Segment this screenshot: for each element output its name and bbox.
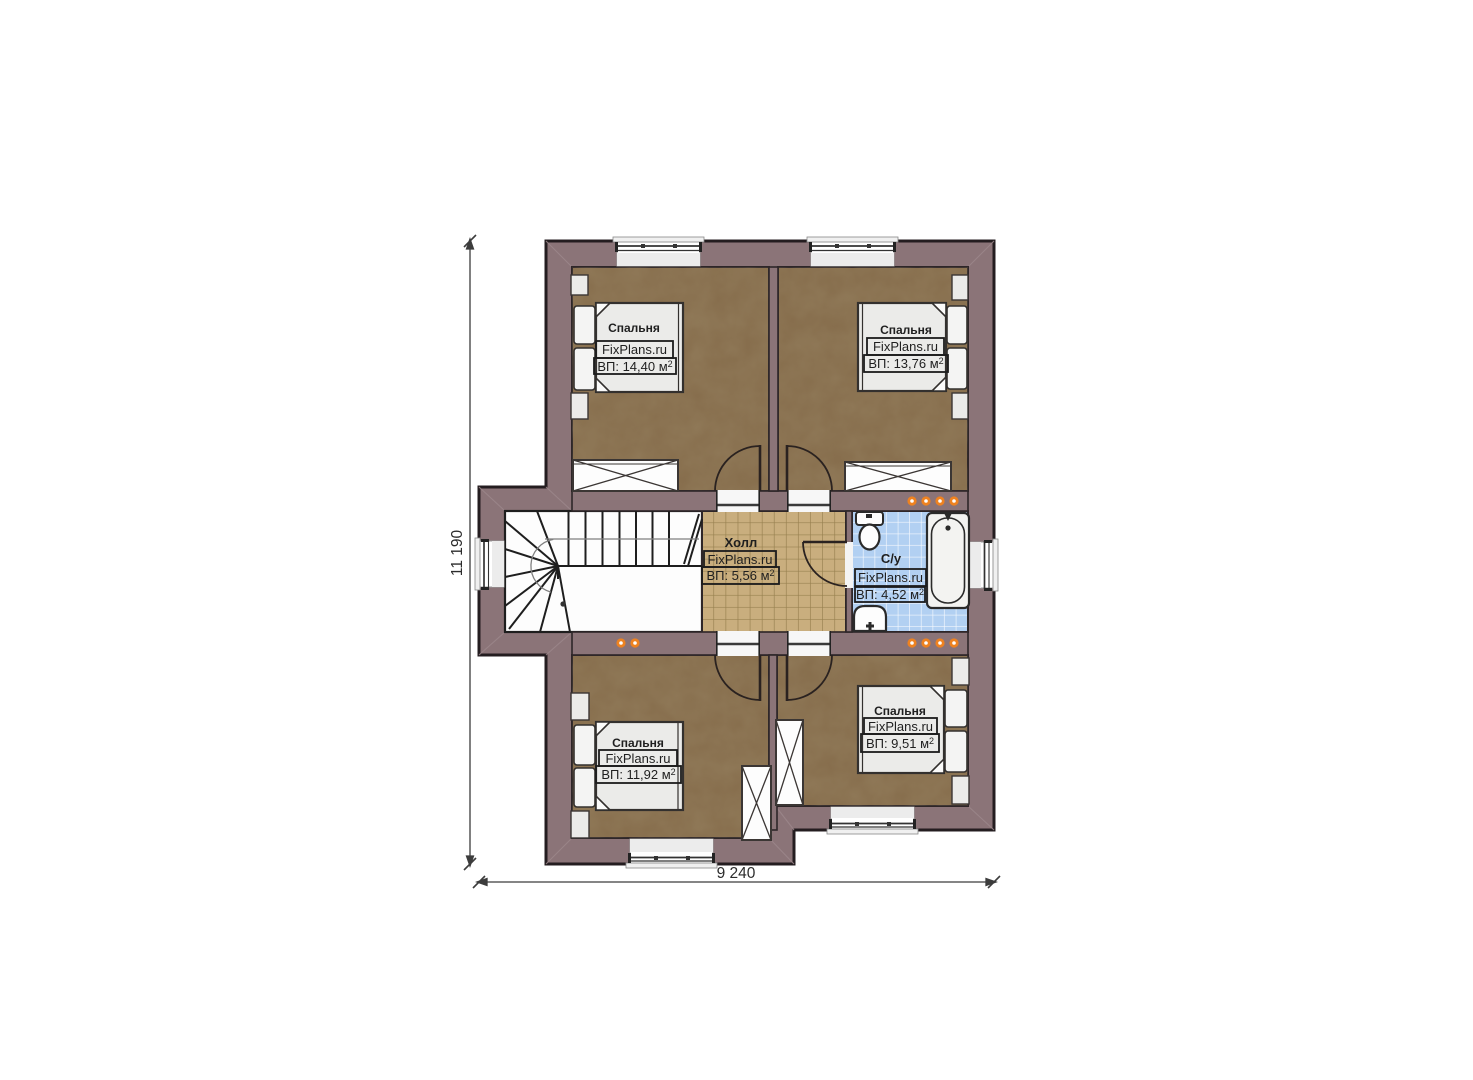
svg-text:9 240: 9 240: [717, 865, 756, 882]
svg-text:Спальня: Спальня: [612, 736, 664, 750]
svg-text:FixPlans.ru: FixPlans.ru: [707, 552, 772, 567]
svg-text:FixPlans.ru: FixPlans.ru: [868, 719, 933, 734]
svg-text:ВП: 11,92 м2: ВП: 11,92 м2: [601, 767, 675, 782]
svg-text:ВП: 4,52 м2: ВП: 4,52 м2: [856, 587, 924, 602]
svg-text:ВП: 9,51 м2: ВП: 9,51 м2: [866, 736, 934, 751]
svg-text:Спальня: Спальня: [880, 323, 932, 337]
svg-text:Спальня: Спальня: [608, 321, 660, 335]
svg-text:11 190: 11 190: [449, 529, 466, 576]
svg-text:FixPlans.ru: FixPlans.ru: [602, 342, 667, 357]
svg-text:С/у: С/у: [881, 551, 902, 566]
svg-text:ВП: 14,40 м2: ВП: 14,40 м2: [597, 359, 672, 374]
svg-text:FixPlans.ru: FixPlans.ru: [605, 751, 670, 766]
svg-text:Холл: Холл: [725, 535, 758, 550]
svg-text:ВП: 13,76 м2: ВП: 13,76 м2: [868, 356, 943, 371]
svg-text:FixPlans.ru: FixPlans.ru: [873, 339, 938, 354]
svg-text:ВП: 5,56 м2: ВП: 5,56 м2: [706, 568, 774, 583]
svg-text:FixPlans.ru: FixPlans.ru: [858, 570, 923, 585]
svg-text:Спальня: Спальня: [874, 704, 926, 718]
